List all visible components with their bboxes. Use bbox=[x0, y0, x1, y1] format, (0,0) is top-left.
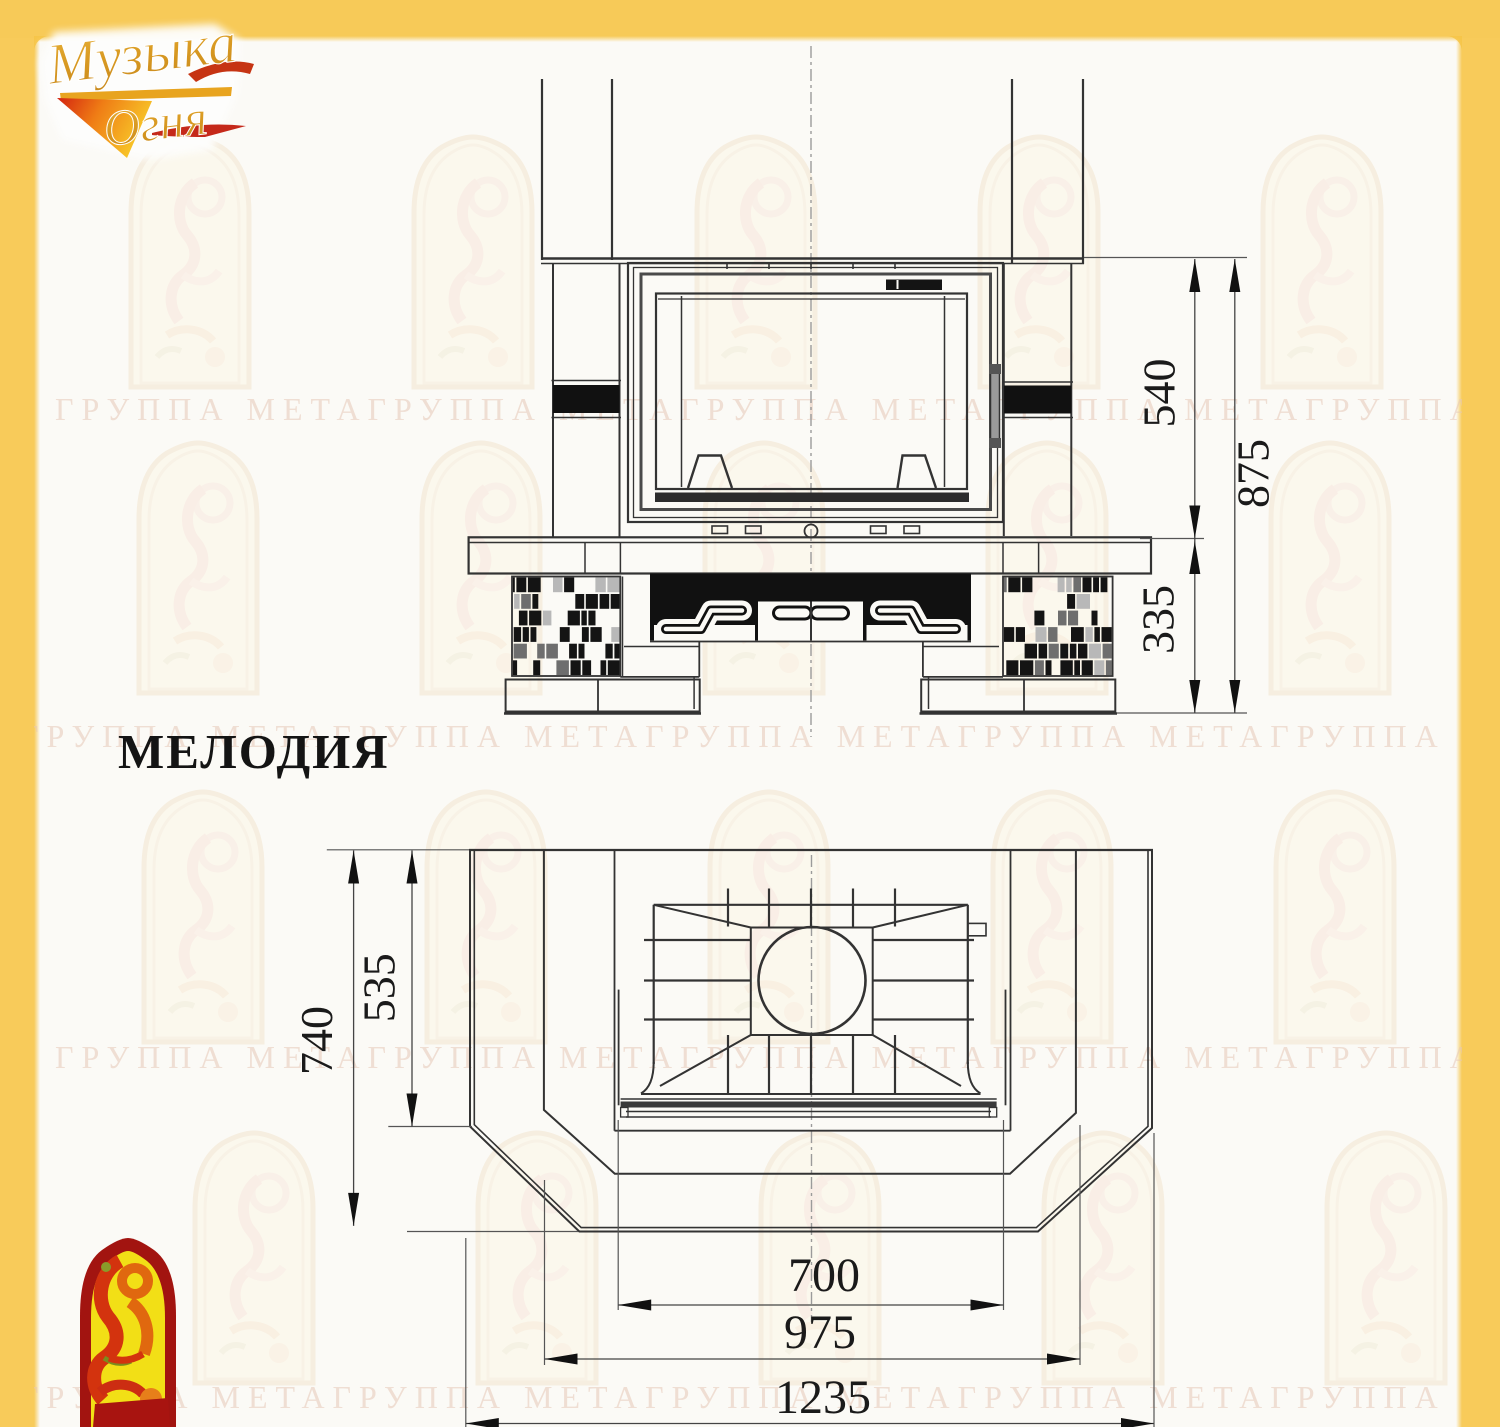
svg-text:ГРУППА МЕТАГРУППА МЕТАГРУППА М: ГРУППА МЕТАГРУППА МЕТАГРУППА МЕТАГРУППА … bbox=[55, 391, 1500, 427]
svg-text:1235: 1235 bbox=[775, 1371, 871, 1424]
svg-text:700: 700 bbox=[788, 1249, 860, 1302]
svg-text:ГРУППА МЕТАГРУППА МЕТАГРУППА М: ГРУППА МЕТАГРУППА МЕТАГРУППА МЕТАГРУППА … bbox=[20, 1379, 1500, 1415]
svg-text:335: 335 bbox=[1133, 585, 1184, 654]
svg-text:875: 875 bbox=[1228, 439, 1279, 508]
svg-text:740: 740 bbox=[291, 1006, 342, 1075]
svg-text:535: 535 bbox=[354, 953, 405, 1022]
svg-text:540: 540 bbox=[1134, 359, 1185, 428]
svg-text:975: 975 bbox=[784, 1306, 856, 1359]
svg-text:МЕЛОДИЯ: МЕЛОДИЯ bbox=[118, 724, 390, 779]
svg-text:ГРУППА МЕТАГРУППА МЕТАГРУППА М: ГРУППА МЕТАГРУППА МЕТАГРУППА МЕТАГРУППА … bbox=[55, 1039, 1500, 1075]
